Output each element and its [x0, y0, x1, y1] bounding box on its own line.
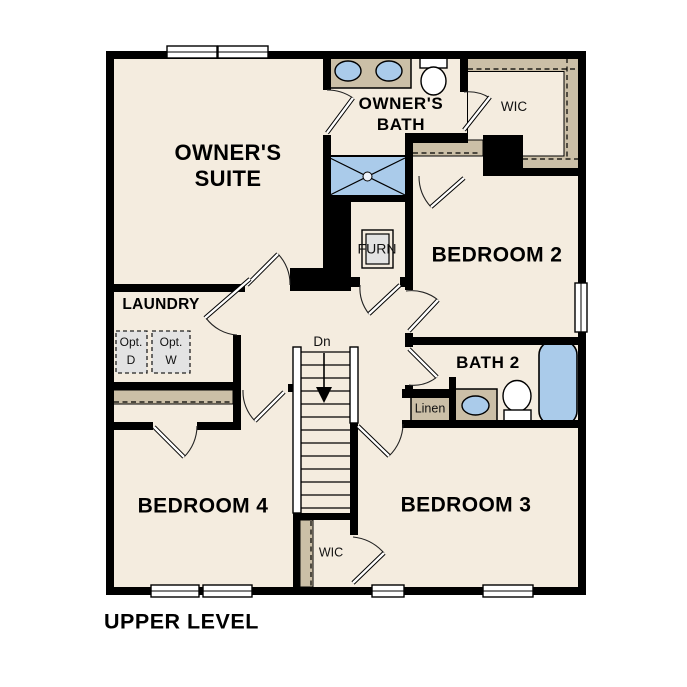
wic-lower-label: WIC — [319, 546, 343, 561]
wic-lower-shelf — [300, 520, 313, 587]
window — [372, 585, 404, 597]
linen-label: Linen — [415, 402, 446, 417]
shower-icon — [328, 156, 407, 197]
floor-plan-canvas: OWNER'SSUITE OWNER'SBATH WIC BEDROOM 2 F… — [0, 0, 687, 687]
window — [167, 46, 217, 58]
bathtub-icon — [539, 341, 577, 425]
owners-bath-double-vanity — [328, 55, 411, 88]
window — [203, 585, 252, 597]
bath2-label: BATH 2 — [456, 353, 520, 373]
laundry-label: LAUNDRY — [122, 296, 199, 314]
bedroom4-label: BEDROOM 4 — [138, 495, 269, 520]
sink-icon — [335, 61, 361, 81]
sink-icon — [462, 396, 489, 415]
bedroom4-closet-shelf — [112, 390, 233, 404]
window — [151, 585, 199, 597]
stairs-dn-label: Dn — [313, 334, 330, 350]
window — [575, 283, 587, 332]
sink-icon — [376, 61, 402, 81]
bath2-toilet-icon — [503, 381, 531, 422]
furnace-label: FURN — [358, 241, 397, 258]
optional-dryer-label: Opt.D — [120, 333, 143, 369]
floor-plan-drawing — [0, 0, 687, 687]
bath2-vanity — [454, 389, 497, 422]
window — [483, 585, 533, 597]
bedroom3-label: BEDROOM 3 — [401, 494, 532, 519]
owners-bath-toilet-icon — [420, 56, 447, 95]
owners-suite-label: OWNER'SSUITE — [174, 140, 281, 192]
wic-upper-label: WIC — [501, 99, 527, 115]
bedroom2-label: BEDROOM 2 — [432, 244, 563, 269]
optional-washer-label: Opt.W — [160, 333, 183, 369]
window — [218, 46, 268, 58]
owners-bath-label: OWNER'SBATH — [359, 93, 444, 136]
page-title: UPPER LEVEL — [104, 609, 259, 634]
